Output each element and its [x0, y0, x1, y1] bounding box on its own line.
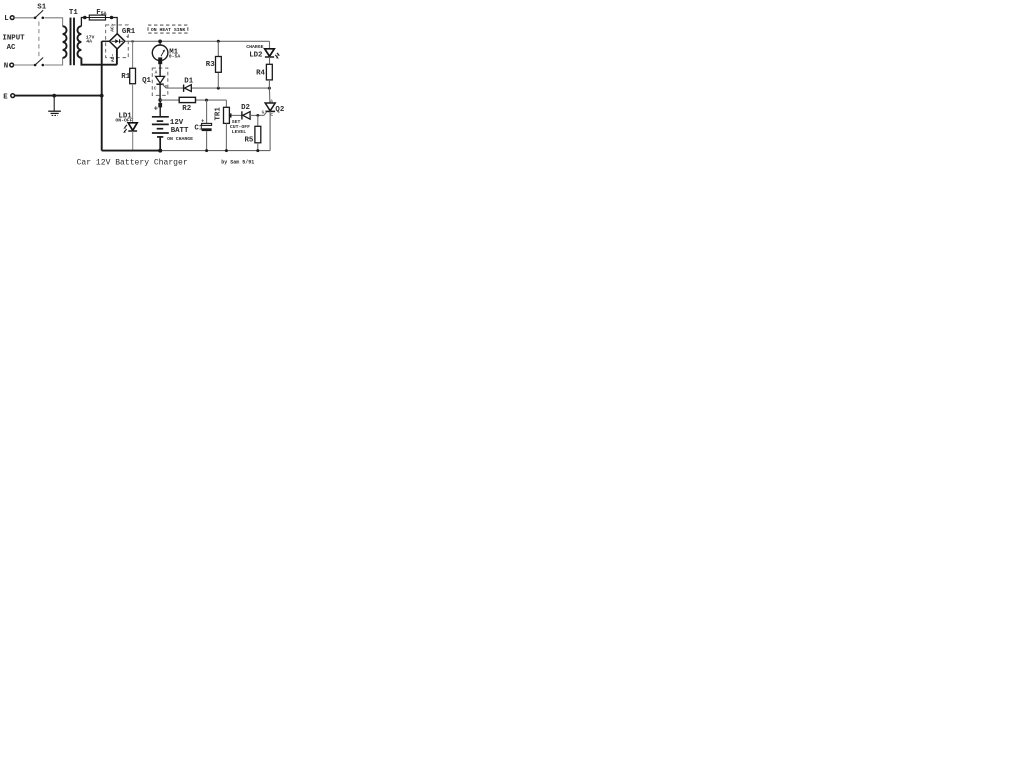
svg-text:+: + — [126, 35, 129, 40]
svg-text:BATT: BATT — [171, 127, 189, 135]
svg-text:R5: R5 — [245, 136, 254, 144]
svg-text:Car 12V Battery Charger: Car 12V Battery Charger — [77, 158, 188, 167]
svg-text:AC~: AC~ — [109, 23, 115, 32]
svg-text:AC: AC — [7, 44, 16, 52]
svg-text:R3: R3 — [206, 61, 215, 69]
svg-text:S1: S1 — [37, 4, 46, 12]
svg-text:R4: R4 — [256, 70, 265, 78]
svg-text:CHARGE: CHARGE — [246, 44, 263, 50]
svg-text:N: N — [4, 63, 8, 71]
svg-text:Q2: Q2 — [275, 106, 284, 114]
svg-text:4A: 4A — [86, 39, 92, 45]
svg-text:AC~: AC~ — [110, 54, 116, 63]
svg-text:LD2: LD2 — [249, 51, 262, 59]
svg-text:D2: D2 — [241, 104, 250, 112]
svg-text:ON CHARGE: ON CHARGE — [167, 136, 193, 142]
svg-text:CUT-OFF: CUT-OFF — [230, 124, 250, 130]
svg-text:12V: 12V — [170, 119, 184, 127]
svg-text:Q1: Q1 — [142, 77, 151, 85]
svg-text:by Sam 5/91: by Sam 5/91 — [221, 160, 254, 166]
svg-text:0-5A: 0-5A — [169, 53, 181, 59]
svg-text:SET: SET — [232, 119, 241, 125]
svg-text:ON HEAT SINK: ON HEAT SINK — [151, 27, 186, 33]
svg-text:L: L — [4, 15, 9, 23]
svg-text:LEVEL: LEVEL — [232, 129, 247, 135]
svg-text:TR1: TR1 — [215, 107, 223, 121]
svg-text:R2: R2 — [182, 105, 191, 113]
svg-text:E: E — [3, 93, 8, 101]
svg-text:C: C — [270, 112, 273, 118]
svg-text:C: C — [154, 86, 157, 92]
svg-text:D1: D1 — [184, 77, 193, 85]
svg-text:G: G — [165, 84, 168, 90]
svg-text:+: + — [154, 105, 159, 113]
svg-text:GR1: GR1 — [122, 28, 136, 36]
svg-text:T1: T1 — [69, 9, 78, 17]
svg-text:INPUT: INPUT — [2, 34, 25, 42]
svg-text:G: G — [262, 110, 265, 116]
svg-text:A: A — [155, 70, 158, 76]
